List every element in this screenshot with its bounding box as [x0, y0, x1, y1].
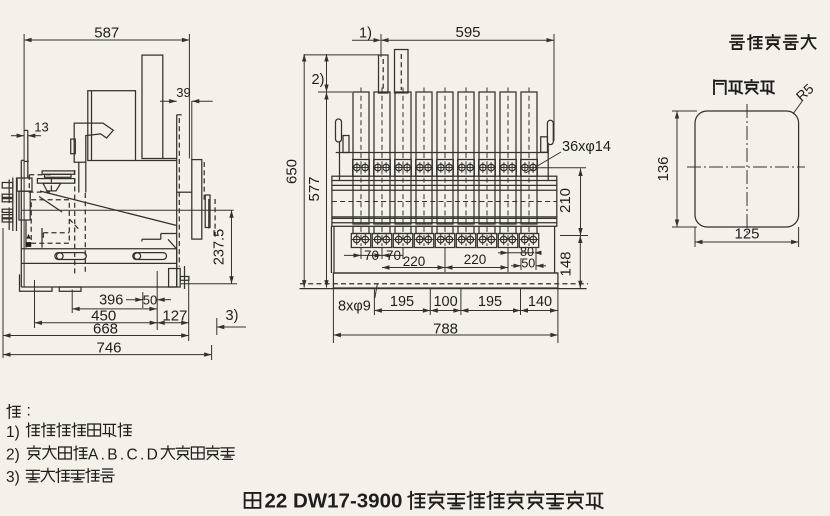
svg-text:136: 136: [655, 156, 672, 181]
svg-text::: :: [27, 403, 31, 420]
svg-text:396: 396: [99, 293, 123, 309]
svg-text:R5: R5: [793, 80, 817, 104]
svg-text:746: 746: [96, 340, 121, 357]
svg-text:50: 50: [521, 257, 535, 271]
svg-text:595: 595: [455, 24, 480, 41]
svg-text:148: 148: [558, 251, 575, 276]
svg-text:100: 100: [433, 294, 457, 310]
svg-text:3): 3): [6, 469, 20, 486]
svg-text:2): 2): [6, 447, 20, 464]
svg-text:788: 788: [433, 321, 458, 338]
svg-text:220: 220: [464, 252, 487, 267]
svg-text:70: 70: [364, 248, 379, 263]
svg-text:3): 3): [226, 308, 239, 324]
svg-text:22 DW17-3900: 22 DW17-3900: [265, 490, 403, 513]
svg-text:1): 1): [6, 424, 20, 441]
svg-text:587: 587: [94, 25, 119, 42]
svg-text:210: 210: [557, 188, 574, 213]
svg-text:668: 668: [93, 321, 118, 338]
svg-text:650: 650: [284, 159, 301, 184]
svg-text:2): 2): [312, 72, 325, 88]
svg-text:70: 70: [386, 248, 401, 263]
svg-text:36xφ14: 36xφ14: [562, 139, 611, 155]
svg-text:127: 127: [162, 308, 187, 325]
svg-text:A.B.C.D: A.B.C.D: [88, 447, 160, 464]
svg-text:8xφ9: 8xφ9: [338, 299, 371, 315]
svg-text:195: 195: [478, 294, 502, 310]
svg-text:220: 220: [403, 254, 426, 269]
svg-text:1): 1): [359, 26, 372, 42]
svg-text:140: 140: [528, 294, 552, 310]
svg-text:39: 39: [176, 85, 190, 100]
svg-text:577: 577: [306, 176, 323, 201]
svg-text:13: 13: [34, 120, 48, 135]
svg-text:125: 125: [734, 226, 759, 243]
svg-text:50: 50: [143, 293, 157, 308]
svg-text:237.5: 237.5: [212, 229, 228, 265]
svg-text:195: 195: [390, 294, 414, 310]
